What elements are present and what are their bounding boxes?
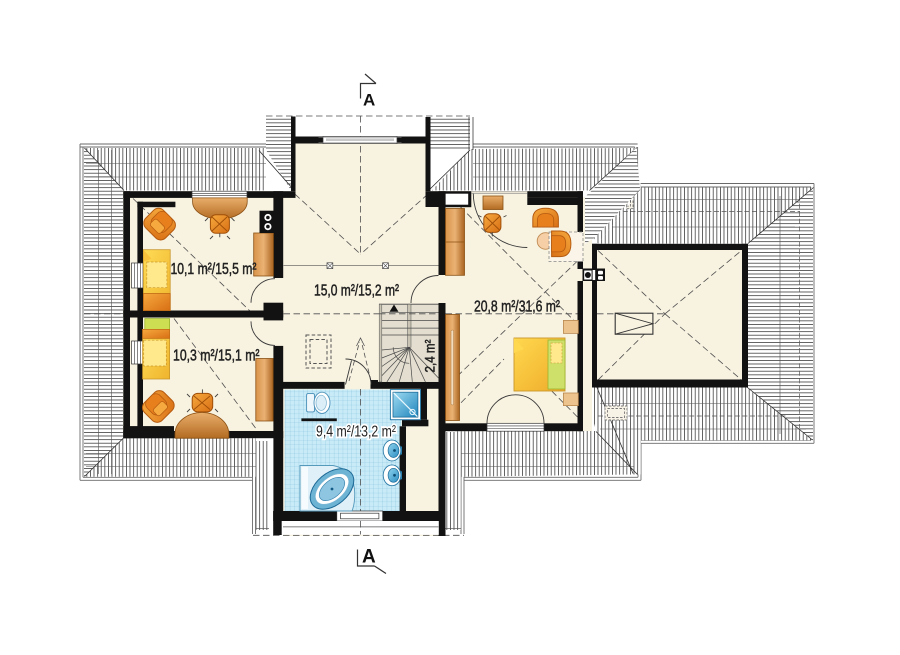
svg-text:A: A [362, 547, 376, 568]
svg-text:10,1 m²/15,5 m²: 10,1 m²/15,5 m² [171, 261, 258, 278]
svg-text:A: A [363, 91, 375, 110]
svg-text:2,4 m²: 2,4 m² [423, 339, 438, 372]
svg-text:9,4 m²/13,2 m²: 9,4 m²/13,2 m² [316, 424, 397, 441]
svg-text:15,0 m²/15,2 m²: 15,0 m²/15,2 m² [314, 283, 399, 300]
svg-text:10,3 m²/15,1 m²: 10,3 m²/15,1 m² [173, 348, 260, 365]
svg-text:20,8 m²/31,6 m²: 20,8 m²/31,6 m² [474, 299, 561, 316]
